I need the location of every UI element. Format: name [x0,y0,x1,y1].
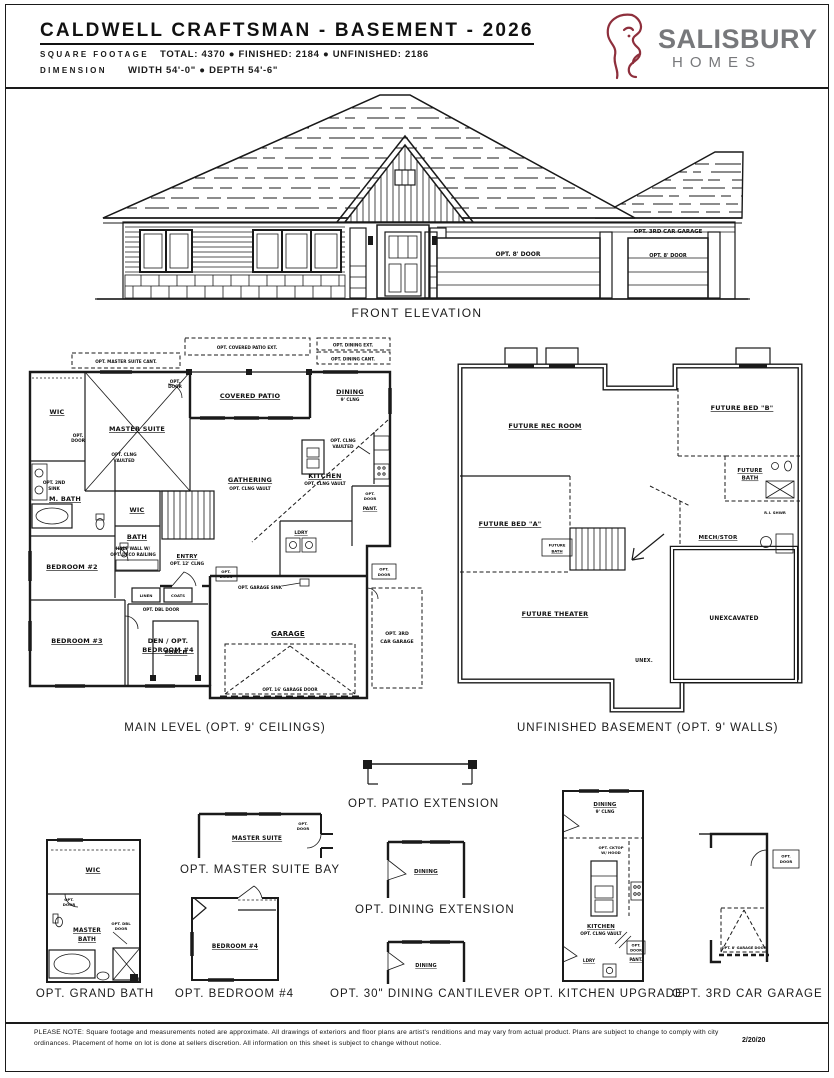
strip-label: OPT. MASTER SUITE CANT. [95,359,157,364]
window-icon [140,230,192,272]
svg-text:OPT. 2ND: OPT. 2ND [43,480,66,486]
opt-patio-extension-caption: OPT. PATIO EXTENSION [348,798,493,810]
brand-name: SALISBURY [658,24,818,55]
svg-text:R.I. SHWR: R.I. SHWR [764,510,786,515]
svg-text:BATH: BATH [551,549,562,554]
window-well-icon [505,348,770,366]
svg-text:OPT. CLNG: OPT. CLNG [330,438,356,444]
svg-text:DOOR: DOOR [63,902,76,907]
room-label-dining: DINING [336,388,364,396]
svg-text:DOOR: DOOR [780,859,793,864]
svg-text:BATH: BATH [78,937,96,943]
svg-text:DOOR: DOOR [115,926,128,931]
strip-label: OPT. COVERED PATIO EXT. [217,345,278,350]
room-label-kitchen: KITCHEN [587,924,615,930]
svg-text:BATH: BATH [742,476,759,482]
opt-door-label: OPT. 8' DOOR [649,253,687,259]
garage-sink-icon [300,579,309,586]
svg-text:OPT.: OPT. [632,944,641,948]
sqft-value: TOTAL: 4370 ● FINISHED: 2184 ● UNFINISHE… [160,49,429,60]
svg-text:CAR GARAGE: CAR GARAGE [380,639,413,645]
opt-dining-extension-caption: OPT. DINING EXTENSION [355,904,500,916]
room-label-bedroom2: BEDROOM #2 [46,563,98,571]
toilet-icon [96,514,104,530]
svg-text:LINEN: LINEN [140,593,153,598]
svg-text:VAULTED: VAULTED [332,444,354,450]
room-label-wic2: WIC [130,506,145,514]
washer-dryer-icon [286,538,316,552]
room-label: DINING [415,963,437,969]
header-divider [5,87,829,89]
room-label-m-bath: M. BATH [49,495,81,503]
opt-kitchen-upgrade-caption: OPT. KITCHEN UPGRADE [518,988,690,1000]
dimension-value: WIDTH 54'-0" ● DEPTH 54'-6" [128,65,278,76]
dimension-label: DIMENSION [40,66,107,75]
basement-caption: UNFINISHED BASEMENT (OPT. 9' WALLS) [517,722,757,734]
third-car-garage-door-icon: OPT. 3RD CAR GARAGE OPT. 8' DOOR [628,229,720,298]
opt-3rd-car-garage-caption: OPT. 3RD CAR GARAGE [672,988,822,1000]
salisbury-logo: SALISBURY HOMES [596,10,826,82]
svg-text:OPT. 12' CLNG: OPT. 12' CLNG [170,561,204,567]
svg-text:DOOR: DOOR [168,384,183,389]
disclaimer-note: PLEASE NOTE: Square footage and measurem… [34,1028,734,1049]
front-door-icon [377,225,429,298]
basement-plan: FUTURE REC ROOM FUTURE BED "B" FUTURE BA… [450,336,830,716]
svg-text:OPT. CLNG VAULT: OPT. CLNG VAULT [229,486,270,492]
opt-kitchen-upgrade-drawing: DINING 9' CLNG OPT. CKTOP W/ HOOD KITCHE… [553,786,653,986]
svg-text:OPT. CLNG VAULT: OPT. CLNG VAULT [304,481,345,487]
svg-text:DOOR: DOOR [364,496,377,501]
stone-wainscot [125,275,345,298]
svg-text:DOOR: DOOR [220,574,233,579]
third-car-garage-label: OPT. 3RD CAR GARAGE [634,229,703,235]
opt-bedroom4-caption: OPT. BEDROOM #4 [162,988,307,1000]
room-label: MASTER SUITE [232,836,282,842]
room-label: BEDROOM #4 [212,944,258,950]
opt-dining-cantilever-drawing: DINING [378,934,473,988]
opt-3rd-car-garage-drawing: OPT. DOOR OPT. 8' GARAGE DOOR [683,822,808,977]
window-icon [253,230,341,272]
front-elevation-caption: FRONT ELEVATION [317,306,517,320]
strip-label: OPT. DINING EXT. [333,343,374,348]
opt-grand-bath-caption: OPT. GRAND BATH [25,988,165,1000]
svg-text:DOOR: DOOR [297,826,310,831]
svg-text:VAULTED: VAULTED [113,458,135,464]
opt-dining-cantilever-caption: OPT. 30" DINING CANTILEVER [330,988,515,1000]
room-label-mech: MECH/STOR [699,535,738,541]
room-label-master-suite: MASTER SUITE [109,425,165,433]
opt-patio-extension-drawing [355,756,485,798]
room-label-theater: FUTURE THEATER [522,610,589,618]
opt-master-suite-bay-caption: OPT. MASTER SUITE BAY [175,864,345,876]
sconce-icon [368,236,373,245]
room-label-gathering: GATHERING [228,476,272,484]
svg-text:OPT.: OPT. [781,854,791,859]
room-label-entry: ENTRY [176,554,198,560]
room-label-pant: PANT. [363,506,378,512]
bathtub-icon [116,560,158,570]
svg-text:W/ HOOD: W/ HOOD [601,850,621,855]
opt-grand-bath-drawing: WIC OPT. DOOR MASTER BATH OPT. DBL DOOR [35,832,155,984]
room-label-bed-b: FUTURE BED "B" [711,404,774,412]
opt-bedroom4-drawing: BEDROOM #4 [180,884,290,984]
plan-sheet: CALDWELL CRAFTSMAN - BASEMENT - 2026 SQU… [0,0,834,1078]
sheet-date: 2/20/20 [742,1037,765,1044]
main-level-plan: OPT. COVERED PATIO EXT. OPT. MASTER SUIT… [20,336,425,716]
svg-text:COATS: COATS [171,593,185,598]
opt-master-suite-bay-drawing: MASTER SUITE OPT. DOOR [185,806,335,864]
room-label-pant: PANT. [629,957,643,962]
sqft-label: SQUARE FOOTAGE [40,50,149,59]
room-label-wic: WIC [86,866,101,874]
room-label-bed-a: FUTURE BED "A" [479,520,542,528]
svg-text:DOOR: DOOR [378,572,391,577]
room-label-ldry: LDRY [294,530,308,536]
garage-door-icon: OPT. 8' DOOR [425,232,612,298]
svg-text:SINK: SINK [48,486,60,492]
svg-text:OPT. CLNG: OPT. CLNG [111,452,137,458]
bathtub-icon [32,504,72,528]
svg-text:9' CLNG: 9' CLNG [596,809,615,815]
svg-text:OPT. 16' GARAGE DOOR: OPT. 16' GARAGE DOOR [262,687,318,692]
svg-text:FUTURE: FUTURE [549,543,566,548]
front-elevation-drawing: OPT. 8' DOOR OPT. 3RD CAR GARAGE OPT. 8'… [95,90,750,302]
room-label-wic: WIC [50,408,65,416]
room-label-dining: DINING [593,802,617,808]
brand-sub: HOMES [672,54,762,71]
room-label-unexcavated: UNEXCAVATED [709,616,758,622]
page-title: CALDWELL CRAFTSMAN - BASEMENT - 2026 [40,20,534,45]
room-label-unex: UNEX. [635,658,653,664]
svg-text:OPT. 8' GARAGE DOOR: OPT. 8' GARAGE DOOR [722,946,767,950]
room-label-bedroom3: BEDROOM #3 [51,637,103,645]
svg-text:OPT. DBL DOOR: OPT. DBL DOOR [143,607,180,612]
room-label-den1: DEN / OPT. [148,637,188,645]
room-label-ldry: LDRY [583,958,596,963]
room-label-kitchen: KITCHEN [308,472,341,480]
svg-text:DOOR: DOOR [630,949,642,953]
room-label-bath: BATH [127,533,147,541]
svg-text:OPT.: OPT. [379,567,389,572]
room-label-covered-patio: COVERED PATIO [220,392,281,400]
svg-text:OPT. 3RD: OPT. 3RD [385,631,409,637]
svg-text:OPT. CLNG VAULT: OPT. CLNG VAULT [580,931,621,937]
opt-dining-extension-drawing: DINING [378,834,473,902]
opt-door-label: OPT. 8' DOOR [496,251,541,258]
main-level-caption: MAIN LEVEL (OPT. 9' CEILINGS) [105,722,345,734]
svg-text:HALF WALL W/: HALF WALL W/ [116,546,151,551]
room-label: DINING [414,869,438,875]
svg-text:OPT. DECO RAILING: OPT. DECO RAILING [110,552,156,557]
room-label-rec-room: FUTURE REC ROOM [508,422,581,430]
svg-text:DOOR: DOOR [71,438,86,443]
lion-head-icon [596,10,656,82]
strip-label: OPT. DINING CANT. [331,357,375,362]
svg-text:FUTURE: FUTURE [737,468,762,474]
svg-text:MASTER: MASTER [73,928,101,934]
footer-divider [5,1022,829,1024]
room-label-garage: GARAGE [271,630,305,638]
stairs-icon [162,491,214,539]
room-label-porch: PORCH [165,650,188,656]
svg-text:9' CLNG: 9' CLNG [341,397,360,403]
svg-text:OPT. GARAGE SINK: OPT. GARAGE SINK [238,585,283,590]
